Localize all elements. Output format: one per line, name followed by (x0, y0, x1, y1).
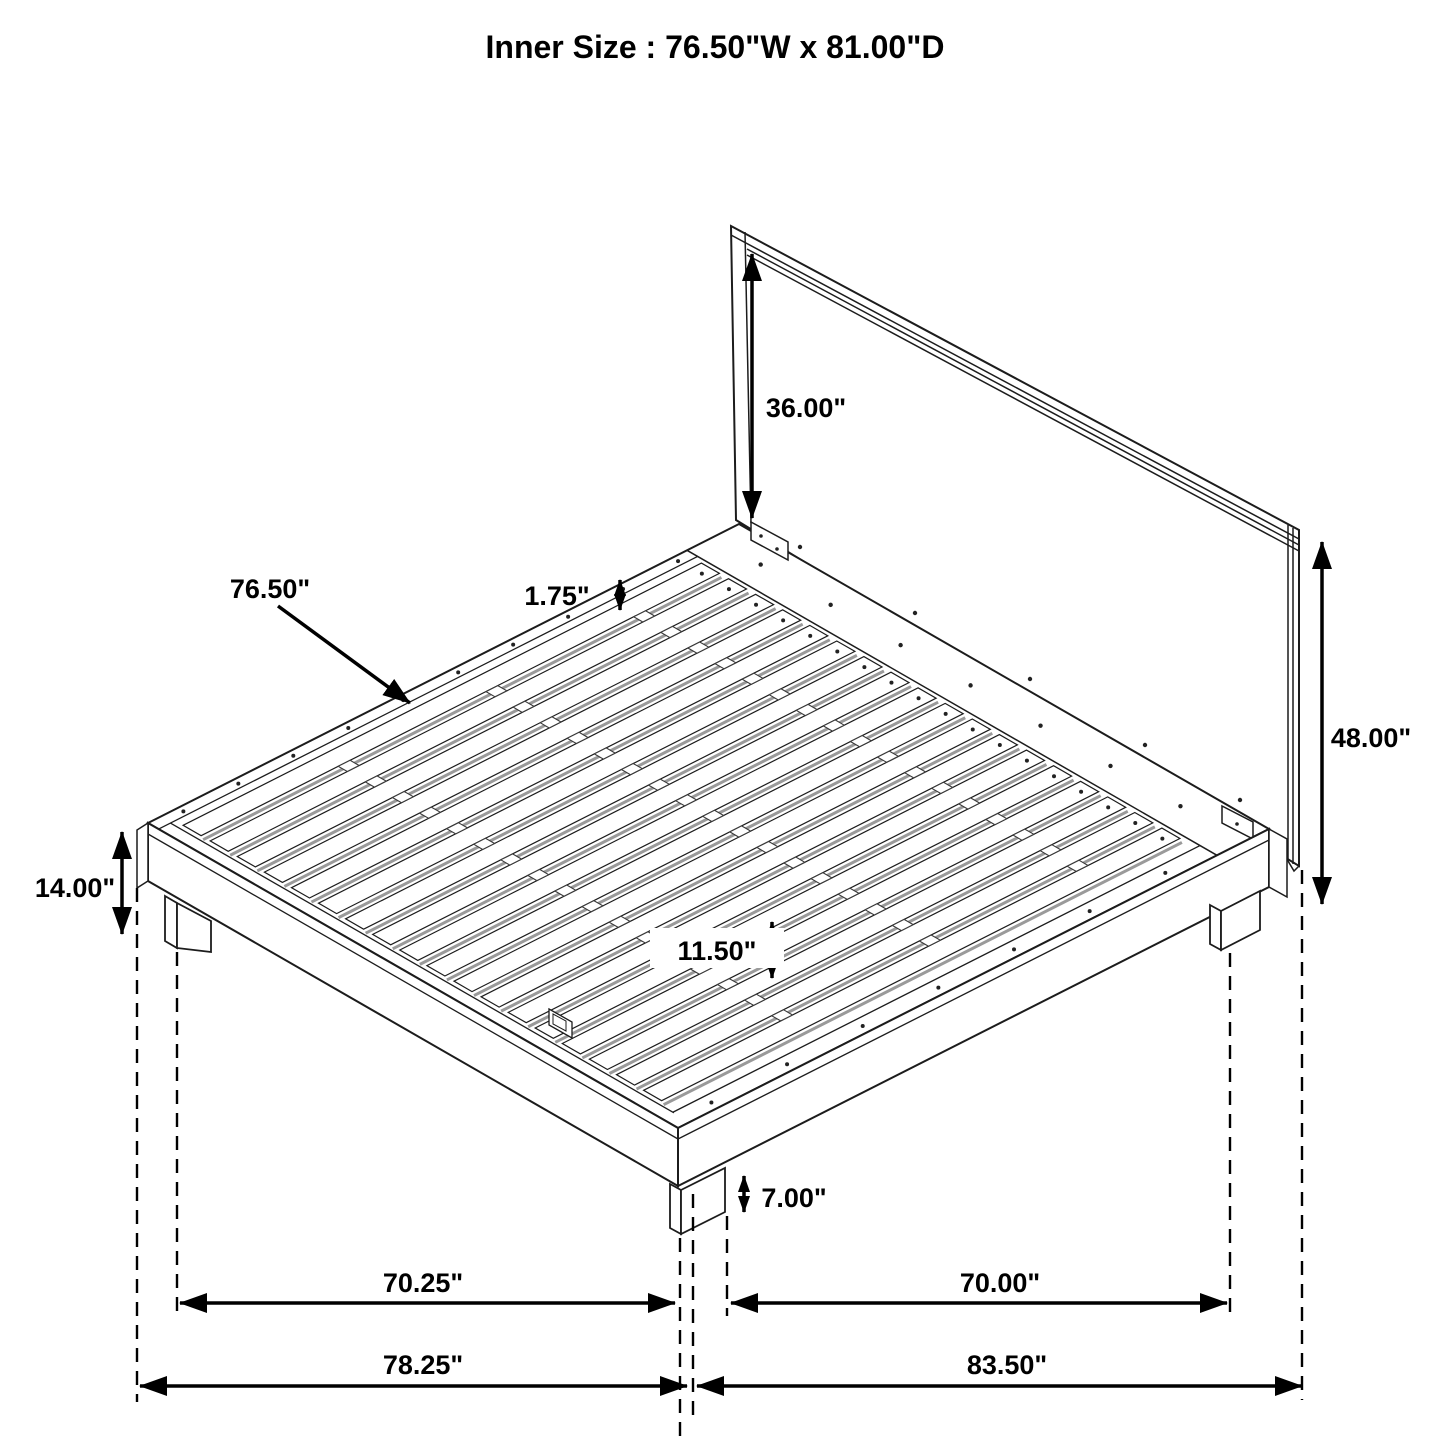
dim-label-slat-length: 76.50" (230, 574, 310, 604)
rail-screw-dot (456, 670, 460, 674)
bracket-screw-dot (759, 534, 763, 538)
dim-label-slat-thickness: 1.75" (524, 581, 589, 611)
dim-label-outer-depth: 83.50" (967, 1350, 1047, 1380)
rail-screw-dot (511, 643, 515, 647)
rail-screw-dot (785, 1062, 789, 1066)
slat-screw-dot (1079, 790, 1083, 794)
slat-screw-dot (781, 618, 785, 622)
left-leg (165, 896, 177, 948)
rail-screw-dot (291, 754, 295, 758)
diagram-canvas: Inner Size : 76.50"W x 81.00"D 36.00" 76… (0, 0, 1445, 1445)
rail-end-cap (1269, 829, 1287, 897)
slat-screw-dot (1052, 774, 1056, 778)
rail-screw-dot (236, 782, 240, 786)
rail-end-cap (137, 823, 148, 888)
rail-screw-dot (1012, 947, 1016, 951)
slat-screw-dot (1025, 759, 1029, 763)
slat-screw-dot (971, 727, 975, 731)
bed-drawing (137, 226, 1299, 1234)
slat-screw-dot (835, 650, 839, 654)
plate-screw-dot (828, 603, 832, 607)
slat-screw-dot (727, 587, 731, 591)
headboard-screw-dot (913, 611, 917, 615)
dim-label-support-spacing: 11.50" (678, 936, 757, 966)
bracket-screw-dot (1235, 822, 1239, 826)
slat-screw-dot (808, 634, 812, 638)
bracket-screw-dot (775, 547, 779, 551)
slat-screw-dot (998, 743, 1002, 747)
rail-screw-dot (676, 559, 680, 563)
rail-screw-dot (181, 809, 185, 813)
slat-screw-dot (1106, 805, 1110, 809)
rail-screw-dot (346, 726, 350, 730)
dim-label-leg-span-side: 70.00" (960, 1268, 1040, 1298)
dim-label-leg-span-front: 70.25" (383, 1268, 463, 1298)
slat-screw-dot (1160, 837, 1164, 841)
slat-screw-dot (1133, 821, 1137, 825)
dim-label-outer-width: 78.25" (383, 1350, 463, 1380)
foot-leg (670, 1184, 681, 1234)
dim-label-platform-height: 14.00" (35, 873, 115, 903)
slat-screw-dot (754, 603, 758, 607)
slat-screw-dot (944, 712, 948, 716)
rail-screw-dot (566, 615, 570, 619)
rail-screw-dot (1088, 909, 1092, 913)
dim-label-headboard-height: 48.00" (1331, 723, 1411, 753)
headboard-screw-dot (1238, 798, 1242, 802)
headboard-screw-dot (1143, 743, 1147, 747)
slat-screw-dot (700, 572, 704, 576)
plate-screw-dot (1178, 804, 1182, 808)
plate-screw-dot (1108, 764, 1112, 768)
dim-label-leg-height: 7.00" (761, 1183, 826, 1213)
plate-screw-dot (968, 683, 972, 687)
rail-screw-dot (861, 1024, 865, 1028)
right-leg (1210, 905, 1221, 950)
slat-screw-dot (862, 665, 866, 669)
dim-label-headboard-above: 36.00" (766, 393, 846, 423)
diagram-title: Inner Size : 76.50"W x 81.00"D (486, 29, 945, 65)
plate-screw-dot (758, 562, 762, 566)
plate-screw-dot (898, 643, 902, 647)
slat-screw-dot (889, 681, 893, 685)
plate-screw-dot (1038, 723, 1042, 727)
bed-dimension-diagram: Inner Size : 76.50"W x 81.00"D 36.00" 76… (0, 0, 1445, 1445)
leader-arrow-slat-length (278, 606, 410, 703)
rail-screw-dot (936, 986, 940, 990)
headboard-screw-dot (798, 545, 802, 549)
headboard-screw-dot (1028, 677, 1032, 681)
slat-screw-dot (917, 696, 921, 700)
rail-screw-dot (1163, 871, 1167, 875)
rail-screw-dot (709, 1100, 713, 1104)
